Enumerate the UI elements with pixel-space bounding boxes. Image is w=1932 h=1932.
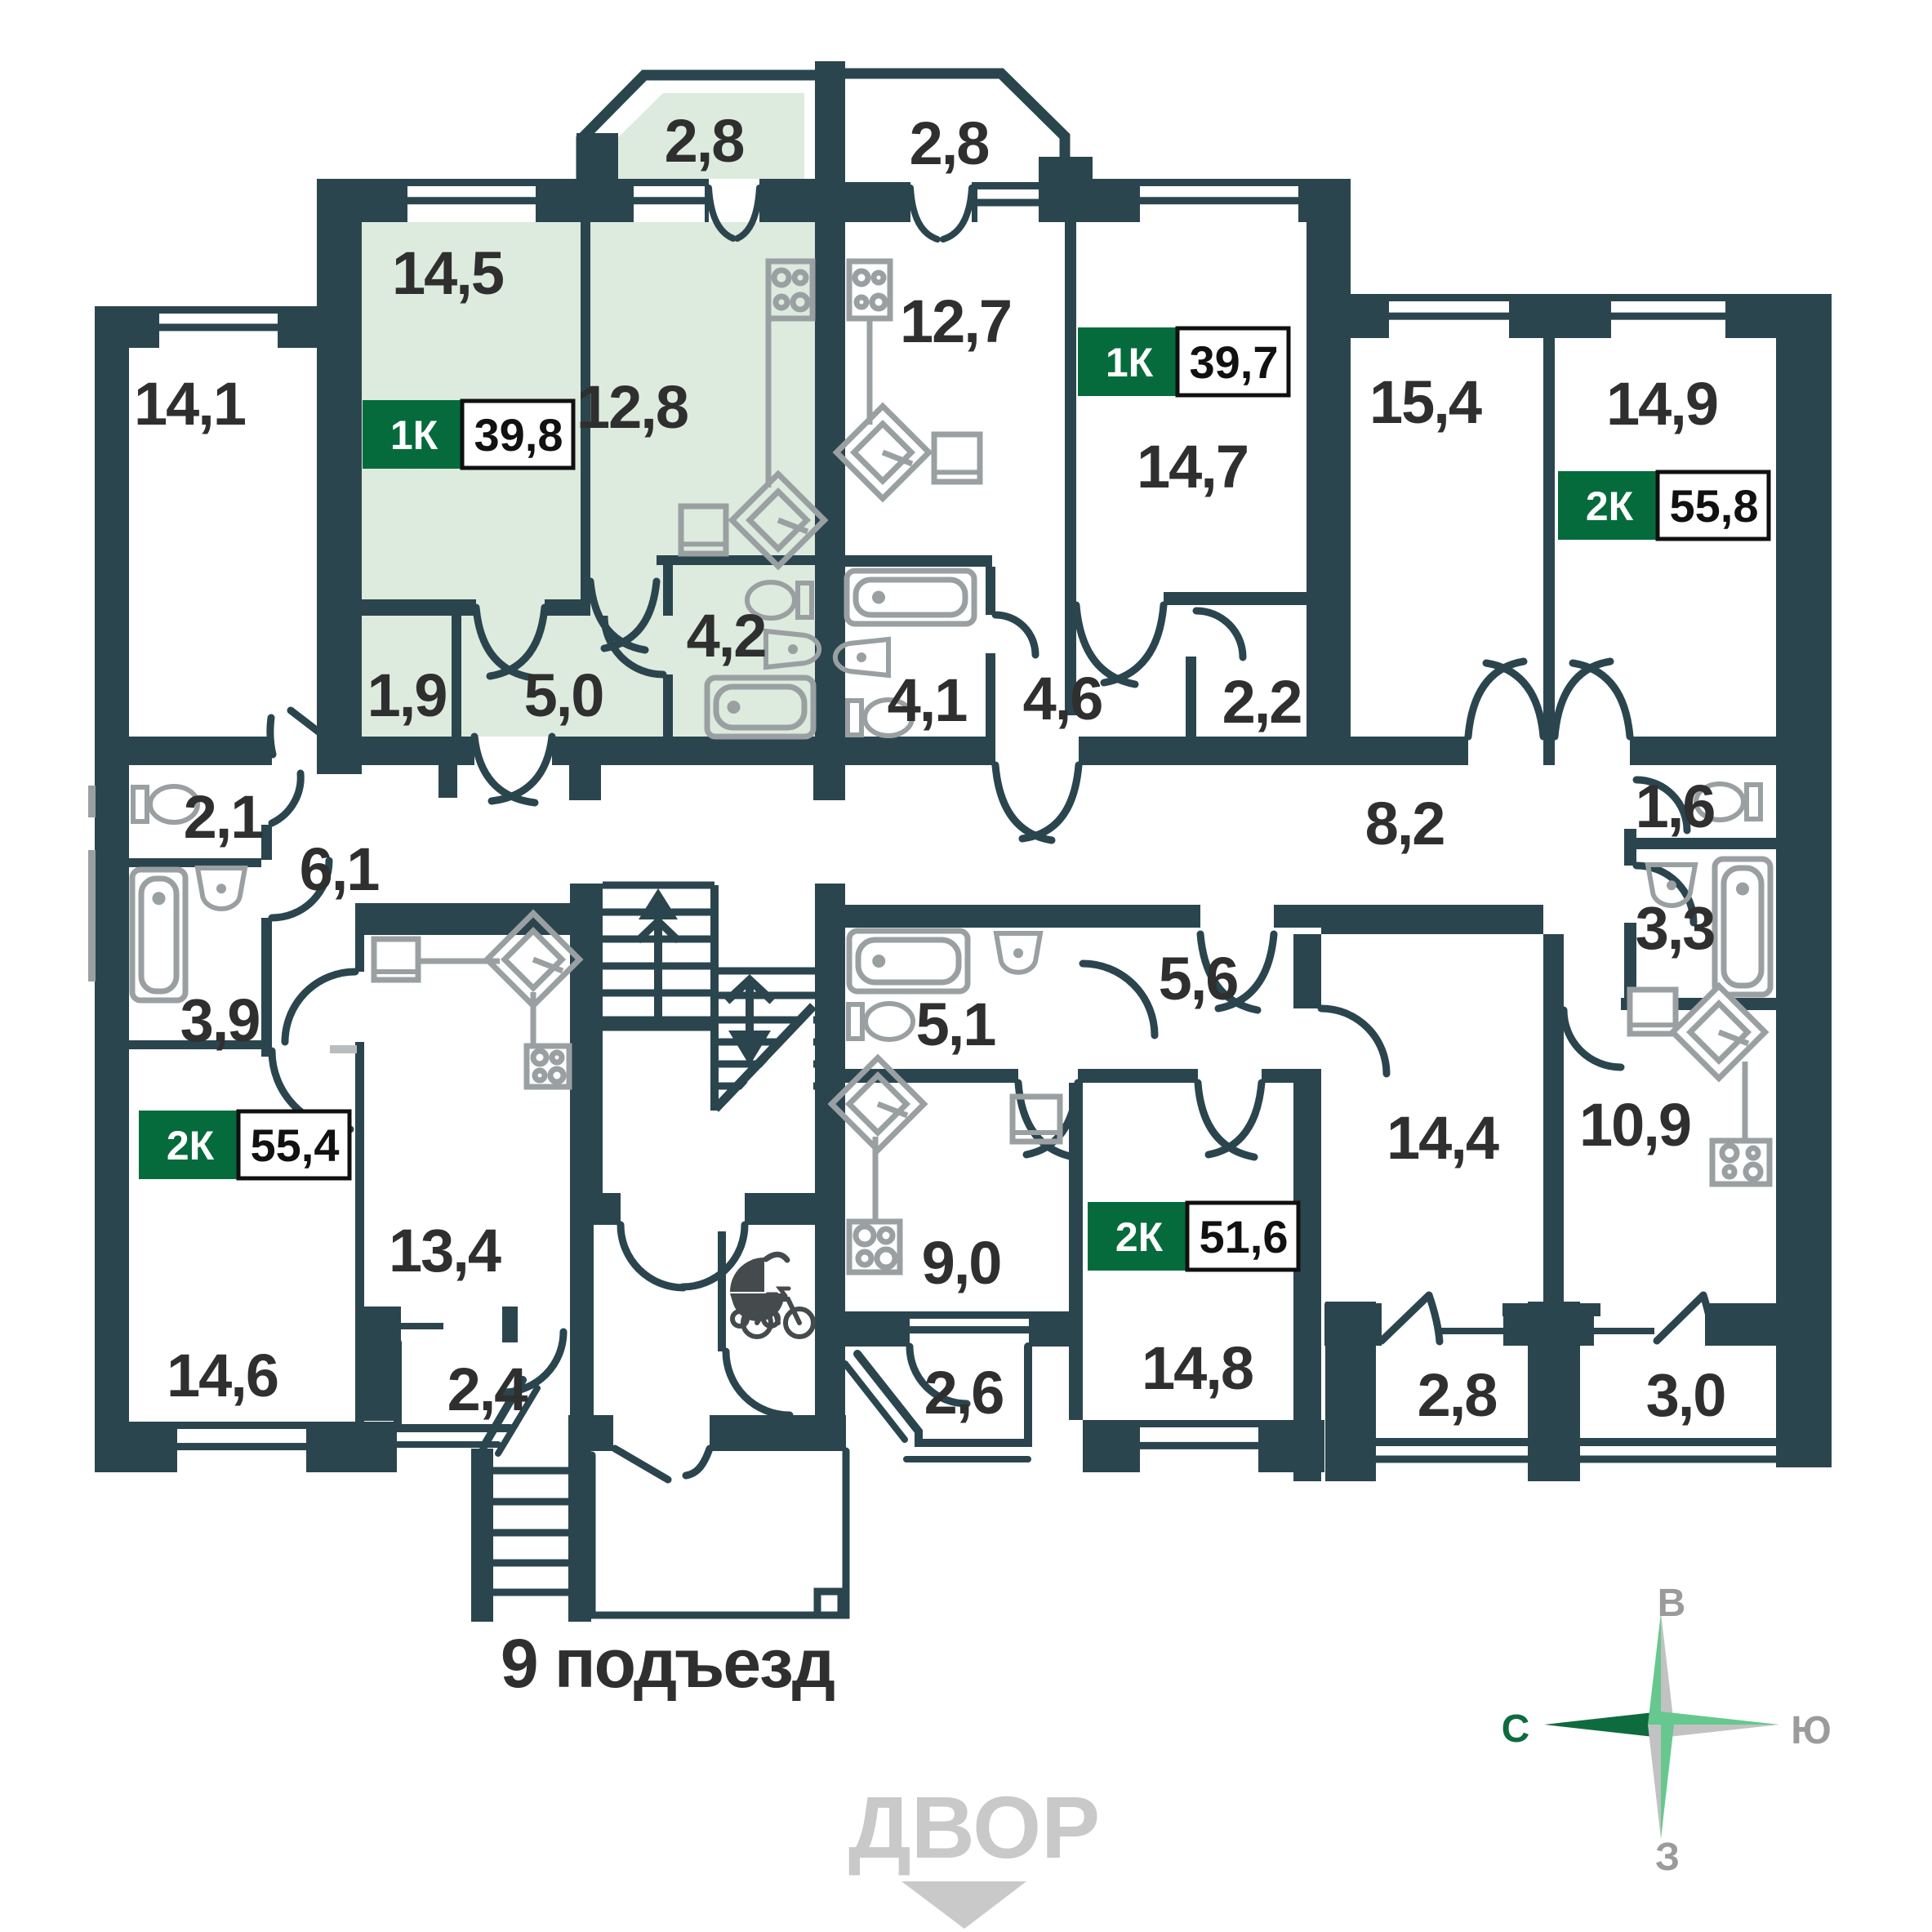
svg-text:2,8: 2,8: [910, 109, 989, 177]
svg-text:4,2: 4,2: [687, 602, 766, 670]
svg-text:6,1: 6,1: [300, 835, 380, 903]
svg-text:55,8: 55,8: [1670, 480, 1759, 532]
svg-text:1К: 1К: [390, 412, 438, 458]
svg-text:2,1: 2,1: [184, 783, 264, 851]
svg-text:51,6: 51,6: [1200, 1211, 1289, 1262]
svg-text:9,0: 9,0: [922, 1229, 1001, 1297]
svg-text:2,2: 2,2: [1222, 668, 1302, 736]
svg-text:9 подъезд: 9 подъезд: [501, 1625, 835, 1702]
svg-text:1,6: 1,6: [1636, 772, 1715, 840]
svg-text:2,8: 2,8: [1418, 1361, 1497, 1429]
svg-text:39,7: 39,7: [1190, 336, 1279, 388]
svg-text:14,4: 14,4: [1387, 1104, 1499, 1172]
svg-text:10,9: 10,9: [1579, 1091, 1690, 1159]
svg-text:8,2: 8,2: [1365, 790, 1445, 857]
svg-text:3,9: 3,9: [180, 986, 260, 1054]
svg-text:14,1: 14,1: [134, 370, 246, 438]
svg-text:2К: 2К: [167, 1123, 215, 1169]
svg-text:З: З: [1655, 1836, 1680, 1879]
svg-text:14,7: 14,7: [1137, 433, 1248, 501]
svg-text:12,8: 12,8: [576, 373, 688, 441]
svg-text:2К: 2К: [1115, 1214, 1164, 1260]
svg-text:2,6: 2,6: [924, 1359, 1004, 1427]
svg-text:5,0: 5,0: [524, 661, 603, 729]
svg-text:В: В: [1658, 1582, 1686, 1625]
svg-text:4,1: 4,1: [888, 666, 968, 734]
svg-text:ДВОР: ДВОР: [848, 1778, 1100, 1876]
svg-text:39,8: 39,8: [474, 409, 563, 461]
svg-text:1,9: 1,9: [367, 661, 447, 729]
svg-text:13,4: 13,4: [389, 1217, 501, 1284]
svg-text:3,0: 3,0: [1646, 1361, 1725, 1429]
svg-text:2К: 2К: [1586, 483, 1634, 529]
svg-text:14,6: 14,6: [167, 1342, 278, 1409]
svg-text:3,3: 3,3: [1636, 894, 1715, 962]
svg-text:Ю: Ю: [1791, 1709, 1832, 1752]
svg-text:5,1: 5,1: [916, 990, 996, 1058]
svg-text:5,6: 5,6: [1159, 945, 1238, 1013]
svg-text:1К: 1К: [1106, 340, 1154, 385]
svg-text:С: С: [1502, 1707, 1530, 1751]
svg-text:14,8: 14,8: [1142, 1334, 1253, 1402]
svg-text:4,6: 4,6: [1023, 665, 1102, 732]
svg-text:55,4: 55,4: [251, 1120, 340, 1171]
svg-text:14,5: 14,5: [392, 239, 504, 307]
svg-text:2,4: 2,4: [447, 1356, 528, 1423]
svg-text:12,7: 12,7: [900, 287, 1011, 355]
svg-text:14,9: 14,9: [1606, 370, 1717, 438]
svg-text:15,4: 15,4: [1369, 368, 1482, 436]
svg-text:2,8: 2,8: [665, 107, 744, 175]
